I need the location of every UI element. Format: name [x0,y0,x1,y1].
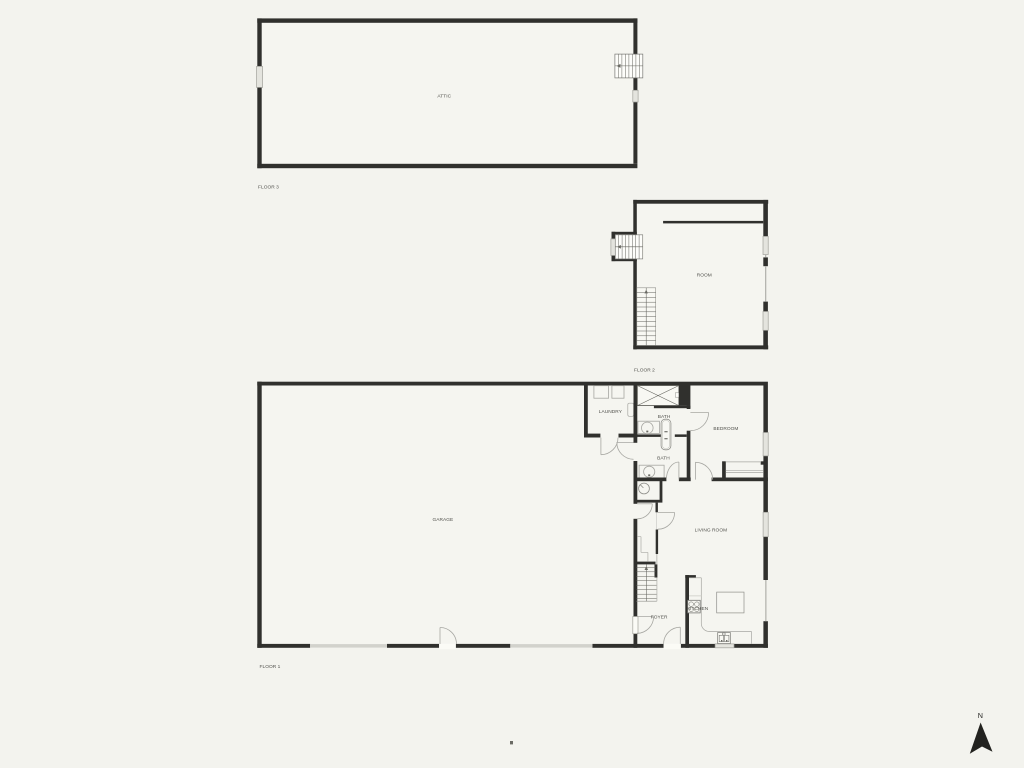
svg-text:LAUNDRY: LAUNDRY [599,409,623,415]
svg-text:N: N [978,711,983,720]
svg-text:ATTIC: ATTIC [437,93,451,99]
svg-text:FLOOR 1: FLOOR 1 [260,664,281,670]
svg-text:KITCHEN: KITCHEN [687,606,709,612]
svg-text:BATH: BATH [657,455,670,461]
svg-text:BEDROOM: BEDROOM [713,426,738,432]
svg-text:FLOOR 3: FLOOR 3 [258,185,279,191]
svg-text:ROOM: ROOM [697,272,712,278]
svg-text:FLOOR 2: FLOOR 2 [634,367,655,373]
svg-text:GARAGE: GARAGE [432,517,453,523]
svg-text:FOYER: FOYER [651,615,668,621]
svg-text:LIVING ROOM: LIVING ROOM [695,527,728,533]
svg-text:BATH: BATH [658,414,671,420]
